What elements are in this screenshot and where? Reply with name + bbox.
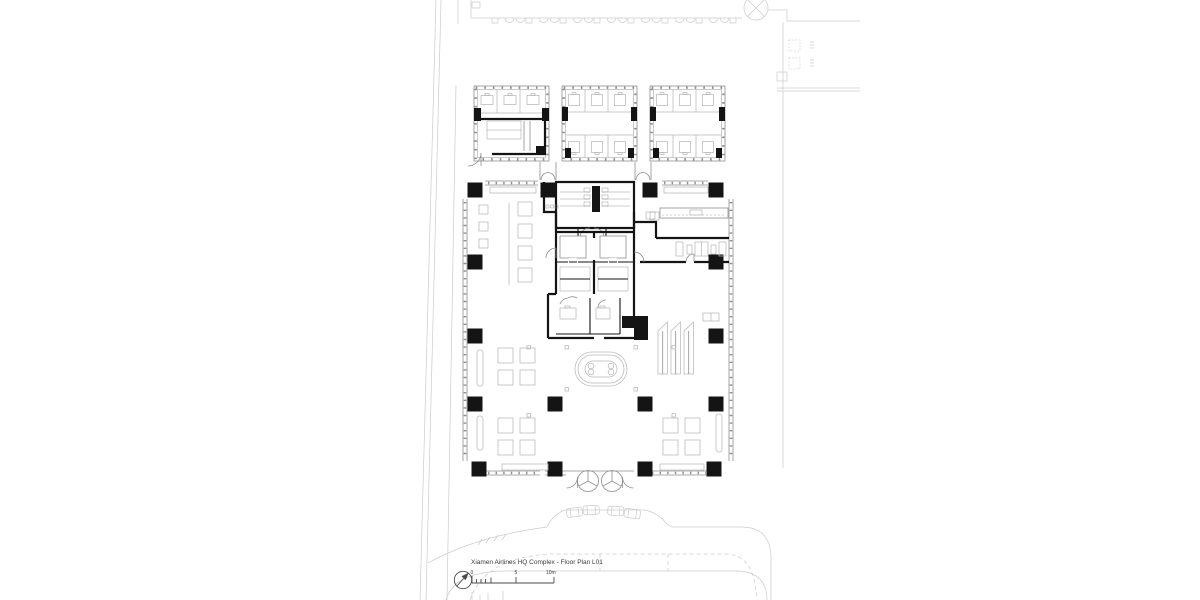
restroom-block	[556, 182, 634, 236]
annex-block-b	[562, 86, 637, 161]
car-symbol	[608, 506, 624, 516]
service-core	[544, 182, 729, 340]
driveway-dropoff	[428, 505, 771, 600]
vestibule-links	[540, 162, 651, 180]
scale-label-mid: 5	[515, 570, 518, 576]
bar-furniture	[676, 242, 726, 256]
annex-block-a	[468, 86, 549, 166]
stair-runs	[556, 266, 634, 294]
north-arrow-icon	[454, 571, 471, 588]
elevator-bank	[556, 212, 634, 266]
core-room-right	[634, 212, 656, 238]
adjacent-building-top	[458, 0, 860, 24]
revolving-door-symbol	[567, 471, 634, 492]
lounge-west-upper	[479, 202, 532, 285]
room-furniture	[657, 93, 714, 155]
room-furniture	[569, 93, 626, 155]
bench	[703, 313, 719, 321]
stair-to-basement	[468, 119, 545, 166]
tower-floorplate	[463, 181, 733, 492]
drawing-title: Xiamen Airlines HQ Complex - Floor Plan …	[471, 559, 603, 566]
scale-label-zero: 0	[471, 570, 474, 576]
site-road-left	[420, 0, 456, 600]
site-boundary-right	[777, 22, 860, 468]
reception-desk	[575, 352, 627, 386]
scale-bar: 0 5 10m	[471, 570, 556, 583]
landscape-ticks	[472, 591, 503, 600]
floor-plan-drawing: Xiamen Airlines HQ Complex - Floor Plan …	[0, 0, 1200, 600]
room-furniture	[481, 94, 539, 105]
title-block: Xiamen Airlines HQ Complex - Floor Plan …	[454, 559, 603, 589]
annex-blocks	[468, 86, 725, 180]
cafe-area	[650, 208, 728, 256]
annex-block-c	[650, 86, 725, 161]
site-context	[420, 0, 860, 600]
car-symbol	[566, 507, 583, 518]
floor-plan-sheet: Xiamen Airlines HQ Complex - Floor Plan …	[0, 0, 1200, 600]
scale-label-end: 10m	[546, 570, 556, 576]
curtain-wall	[463, 181, 733, 475]
lounge-west-lower	[477, 348, 548, 470]
circle-cross-survey-marker	[744, 0, 768, 20]
